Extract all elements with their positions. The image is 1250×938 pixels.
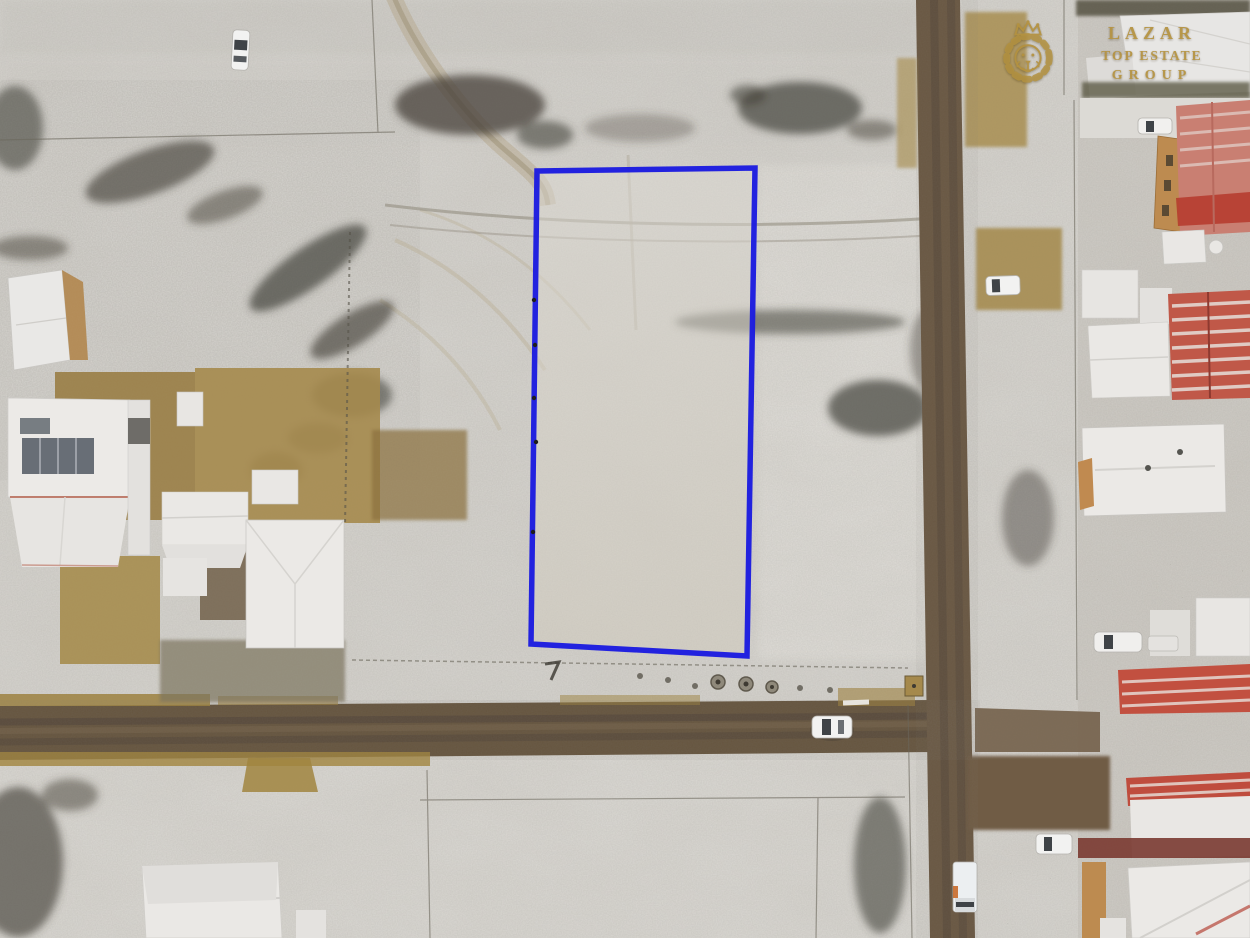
house-roof-hip [10,497,130,567]
scrub [585,114,695,142]
dirt-verge [976,228,1062,310]
debris [637,673,643,679]
well-center [716,680,721,685]
car-bottom-right [1036,834,1072,854]
stake [533,343,537,347]
trailer [1148,636,1178,651]
debris [827,687,833,693]
garden-speckle [1075,512,1250,607]
shed-roof [1100,918,1126,938]
car-window [1146,121,1154,132]
house-roof-white [8,270,70,370]
dirt-yard [372,430,467,520]
tree-right-verge [1002,470,1054,566]
car-on-road [810,716,854,741]
debris [665,677,671,683]
bare-trees [847,120,897,140]
plot-interior [531,168,755,656]
debris [692,683,698,689]
chimney [1145,465,1151,471]
house-roof-white [1128,862,1250,938]
car-window [992,279,1000,292]
garden-speckle [965,845,1080,935]
round-tank [1209,240,1223,254]
truck-orange-mark [953,886,958,898]
muddy-yard [160,640,345,702]
truck-right-street [953,862,977,912]
car-body [812,716,852,738]
car-window [234,40,248,51]
car-upper-right-yard [1138,118,1172,134]
car-right-street [986,275,1021,295]
car-body [1138,118,1172,134]
hedge [1082,82,1250,98]
dark-red-wall [1078,838,1250,858]
car-window [838,720,844,734]
driveway [242,758,318,792]
shed-roof [177,392,203,426]
shed-roof [296,910,326,938]
solar-panels [20,418,50,434]
stake [532,396,536,400]
bare-trees [517,121,573,149]
car-window [822,719,831,735]
car-body [1036,834,1072,854]
bush [828,380,928,436]
chimney [1177,449,1183,455]
roof-opening [128,418,150,444]
road-grain [916,0,978,938]
bare-trees [730,85,766,105]
road-east-continuation [975,708,1100,752]
window [1166,155,1173,166]
car-window [1044,837,1052,851]
house-roof-gable [162,492,248,545]
aerial-photo: LAZAR TOP ESTATE GROUP [0,0,1250,938]
dirt-yard [60,556,160,664]
window [1162,205,1169,216]
trees-bottom [854,797,906,933]
car-top-left [231,30,250,71]
red-eave [22,565,118,566]
bush [42,779,98,811]
porch-roof-orange [1078,458,1094,510]
white-plank [843,700,869,706]
annex-roof [163,558,207,596]
car-window [1104,635,1113,649]
bare-trees [395,75,545,135]
aerial-photo-canvas [0,0,1250,938]
window [1164,180,1171,191]
property-plot [531,168,755,656]
dirt-yard-bottom-right [968,756,1110,830]
gate-box-dot [912,684,916,688]
roof-face [142,862,278,904]
stake [534,440,538,444]
truck-window [956,902,974,907]
car-window [233,56,246,63]
stake [531,530,535,534]
shed-roof [252,470,298,504]
well-center [770,685,774,689]
garden-speckle [1078,238,1178,333]
car-body [986,275,1021,295]
dirt-verge [897,58,917,168]
stake [532,298,536,302]
debris [797,685,803,691]
car-body [1094,632,1142,652]
well-center [744,682,749,687]
